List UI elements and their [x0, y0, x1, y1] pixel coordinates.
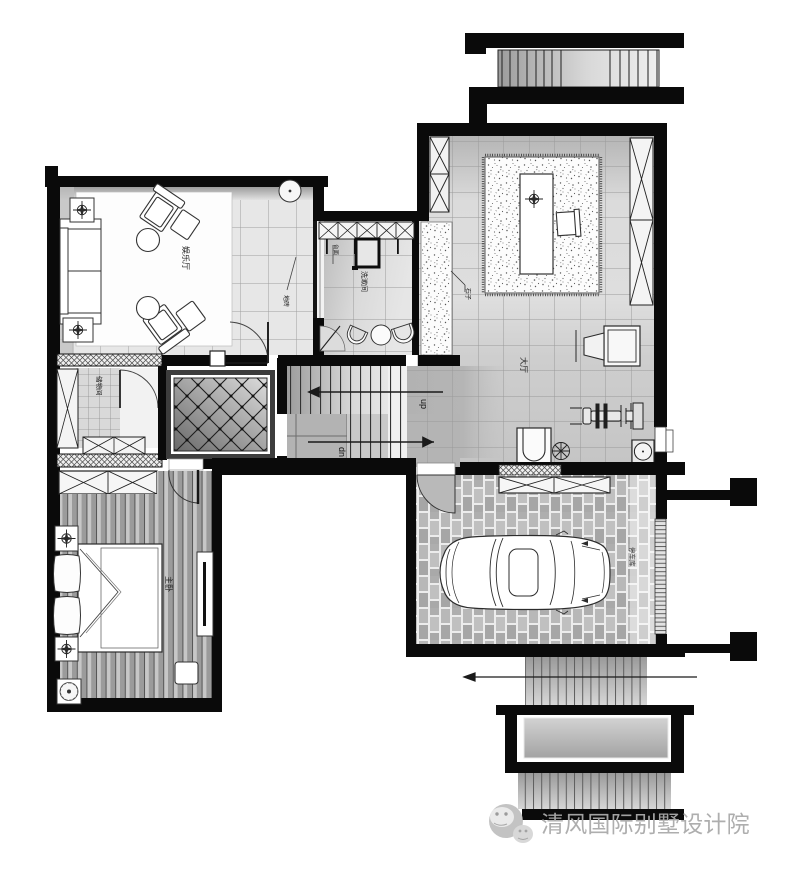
svg-text:娱乐厅: 娱乐厅 [181, 246, 191, 270]
svg-text:大厅: 大厅 [519, 357, 529, 373]
svg-text:石子: 石子 [464, 288, 471, 300]
svg-text:台面: 台面 [332, 244, 340, 256]
svg-text:洗漱间: 洗漱间 [360, 271, 369, 292]
svg-text:主卧: 主卧 [164, 576, 174, 592]
svg-text:储物间: 储物间 [95, 376, 104, 396]
svg-text:停车库: 停车库 [628, 547, 637, 567]
svg-text:地砖: 地砖 [282, 295, 290, 307]
svg-text:up: up [419, 399, 429, 409]
svg-text:dn: dn [337, 447, 347, 457]
svg-text:清风国际别墅设计院: 清风国际别墅设计院 [541, 811, 750, 837]
